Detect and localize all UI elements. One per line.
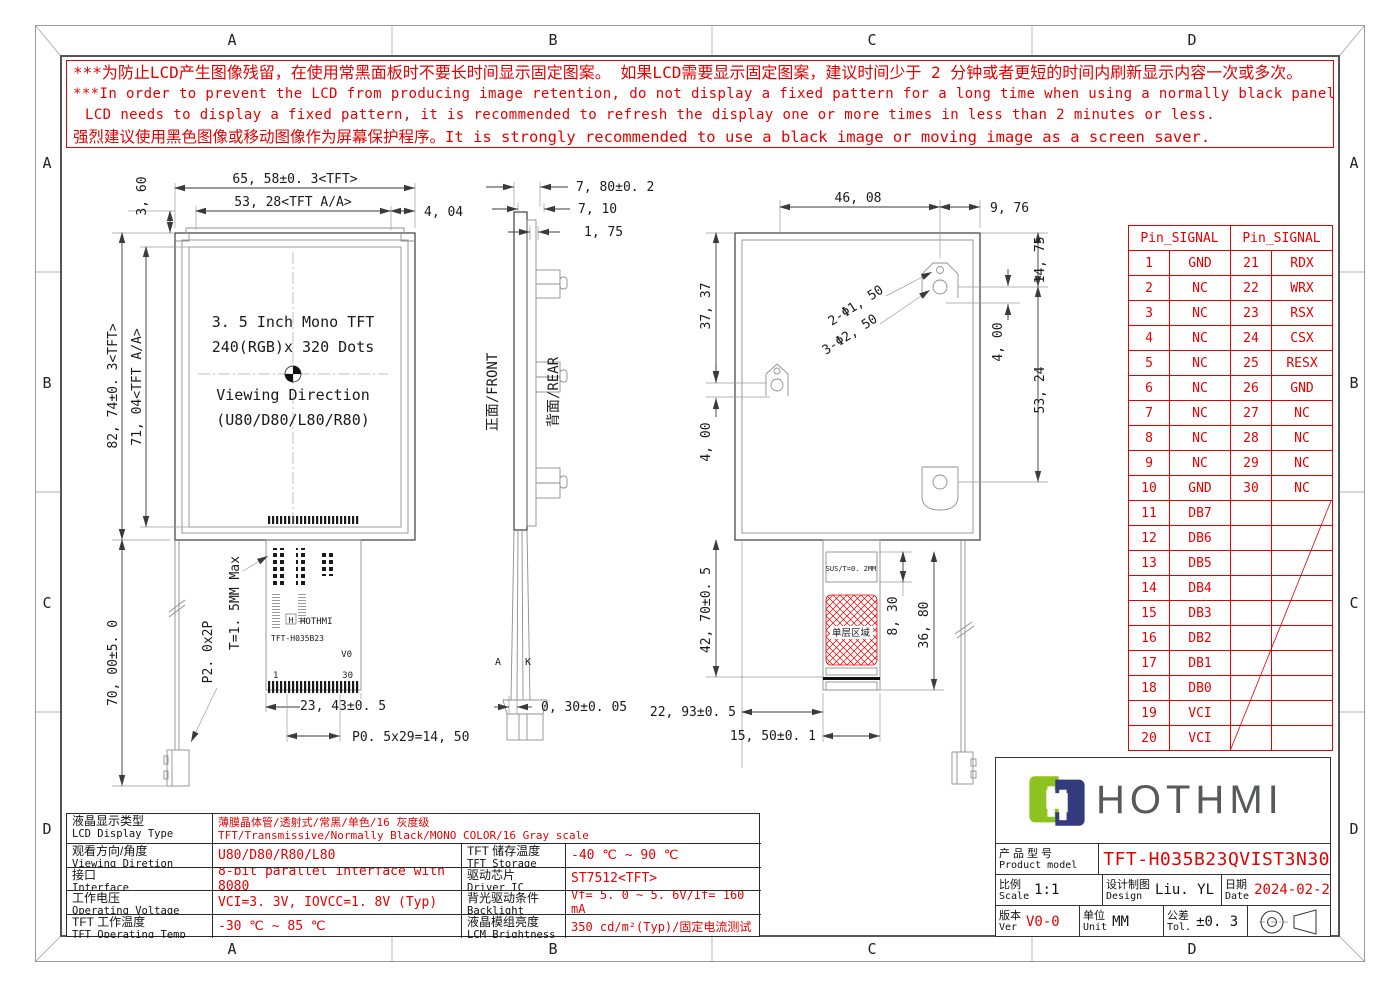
dim-400-right-label: 4, 00 <box>991 322 1006 361</box>
pin-signal-cell: GND <box>1170 251 1231 276</box>
pin-number-cell: 24 <box>1231 326 1272 351</box>
pin-signal-cell: NC <box>1170 326 1231 351</box>
pin-row: 14DB4 <box>1129 576 1333 601</box>
rear-face-label: 背面/REAR <box>546 356 562 427</box>
cathode-label: K <box>525 657 531 668</box>
pin-number-cell: 17 <box>1129 651 1170 676</box>
pin-signal-cell: NC <box>1272 451 1333 476</box>
zone-row-right-C: C <box>1341 590 1367 616</box>
pin-table: Pin_SIGNAL Pin_SIGNAL 1GND21RDX2NC22WRX3… <box>1128 225 1333 751</box>
pin-number-cell: 25 <box>1231 351 1272 376</box>
sus-label: SUS/T=0. 2MM <box>826 565 877 573</box>
spec-label: 液晶显示类型 LCD Display Type <box>67 814 213 844</box>
pin-row: 18DB0 <box>1129 676 1333 701</box>
dim-fpc-length-label: 70, 00±5. 0 <box>106 620 121 706</box>
dim-400-left-label: 4, 00 <box>699 422 714 461</box>
pin-row: 1GND21RDX <box>1129 251 1333 276</box>
spec-value-en: TFT/Transmissive/Normally Black/MONO COL… <box>218 829 589 842</box>
pin-row: 3NC23RSX <box>1129 301 1333 326</box>
pin-row: 20VCI <box>1129 726 1333 751</box>
zone-col-top-B: B <box>540 27 566 53</box>
pin-row: 13DB5 <box>1129 551 1333 576</box>
date-cell: 日期 Date 2024-02-27 <box>1222 875 1330 905</box>
pin-number-cell: 5 <box>1129 351 1170 376</box>
pin-signal-cell <box>1272 676 1333 701</box>
pin-row: 17DB1 <box>1129 651 1333 676</box>
rear-fpc: SUS/T=0. 2MM 单层区域 <box>823 540 880 690</box>
spec-label-en: LCD Display Type <box>72 828 207 840</box>
warning-line-mixed: 强烈建议使用黑色图像或移动图像作为屏幕保护程序。It is strongly r… <box>73 127 1327 149</box>
title-block: HOTHMI 产 品 型 号 Product model TFT-H035B23… <box>995 757 1331 937</box>
pin-number-cell: 29 <box>1231 451 1272 476</box>
dim-3680-label: 36, 80 <box>917 602 932 649</box>
spec-value-cn: 薄膜晶体管/透射式/常黑/单色/16 灰度级 <box>218 816 429 829</box>
pin-number-cell: 10 <box>1129 476 1170 501</box>
pin-signal-cell: DB2 <box>1170 626 1231 651</box>
pin-signal-cell: WRX <box>1272 276 1333 301</box>
pin-number-cell: 20 <box>1129 726 1170 751</box>
zone-row-left-A: A <box>34 150 60 176</box>
zone-row-left-D: D <box>34 816 60 842</box>
fpc-version-label: V0 <box>341 650 352 660</box>
pin-number-cell: 18 <box>1129 676 1170 701</box>
dim-total-thickness-label: 7, 80±0. 2 <box>576 180 654 195</box>
spec-table: 液晶显示类型 LCD Display Type 薄膜晶体管/透射式/常黑/单色/… <box>66 813 760 937</box>
unit-value: MM <box>1112 914 1129 930</box>
pin-signal-cell: NC <box>1170 401 1231 426</box>
pin-table-header-row: Pin_SIGNAL Pin_SIGNAL <box>1129 226 1333 251</box>
pin-number-cell <box>1231 651 1272 676</box>
zone-row-left-B: B <box>34 370 60 396</box>
dim-5324-label: 53, 24 <box>1033 366 1048 413</box>
center-mark-icon <box>293 366 301 374</box>
product-model-row: 产 品 型 号 Product model TFT-H035B23QVIST3N… <box>996 844 1330 875</box>
anode-label: A <box>495 657 501 668</box>
fpc-logo-icon: H <box>289 616 294 625</box>
pin-row: 19VCI <box>1129 701 1333 726</box>
viewing-angles-label: (U80/D80/L80/R80) <box>216 411 370 429</box>
pin-number-cell: 7 <box>1129 401 1170 426</box>
fpc-pin1-label: 1 <box>273 671 278 681</box>
pin-number-cell: 28 <box>1231 426 1272 451</box>
zone-col-top-C: C <box>859 27 885 53</box>
warning-line-cn: ***为防止LCD产生图像残留，在使用常黑面板时不要长时间显示固定图案。 如果L… <box>73 62 1327 84</box>
zone-col-bottom-A: A <box>219 936 245 962</box>
pin-row: 15DB3 <box>1129 601 1333 626</box>
pin-signal-cell: NC <box>1170 376 1231 401</box>
pin-signal-cell: VCI <box>1170 726 1231 751</box>
dim-3737-label: 37, 37 <box>699 283 714 330</box>
dim-height-label: 82, 74±0. 3<TFT> <box>106 323 121 448</box>
fpc-model-label: TFT-H035B23 <box>271 634 324 643</box>
pin-signal-cell: GND <box>1170 476 1231 501</box>
spec-value: Vf= 5. 0 ~ 5. 6V/If= 160 mA <box>566 891 761 915</box>
spec-value: 8-bit parallel interface with 8080 <box>213 868 462 892</box>
pin-table-body: 1GND21RDX2NC22WRX3NC23RSX4NC24CSX5NC25RE… <box>1129 251 1333 751</box>
scale-value: 1:1 <box>1034 882 1059 898</box>
pin-number-cell <box>1231 626 1272 651</box>
pin-signal-cell <box>1272 701 1333 726</box>
pin-number-cell <box>1231 726 1272 751</box>
pin-table-header-left: Pin_SIGNAL <box>1129 226 1231 251</box>
pin-number-cell: 27 <box>1231 401 1272 426</box>
pin-signal-cell <box>1272 651 1333 676</box>
version-cell: 版本 Ver V0-0 <box>996 906 1080 937</box>
zone-col-bottom-C: C <box>859 936 885 962</box>
pin-signal-cell <box>1272 501 1333 526</box>
pin-number-cell <box>1231 576 1272 601</box>
pin-table-container: Pin_SIGNAL Pin_SIGNAL 1GND21RDX2NC22WRX3… <box>1128 225 1332 751</box>
zone-col-top-D: D <box>1179 27 1205 53</box>
rear-view: 2-Φ1, 50 3-Φ2, 50 SUS/T=0. 2MM 单层区域 <box>735 233 980 784</box>
pin-number-cell <box>1231 676 1272 701</box>
pin-number-cell: 26 <box>1231 376 1272 401</box>
backlight-connector-rear <box>952 540 976 784</box>
pin-signal-cell: NC <box>1272 401 1333 426</box>
pin-signal-cell: NC <box>1272 426 1333 451</box>
dim-fpc-thickness-label: 0, 30±0. 05 <box>541 700 627 715</box>
logo-row: HOTHMI <box>996 758 1330 844</box>
single-layer-label: 单层区域 <box>832 627 871 639</box>
date-value: 2024-02-27 <box>1254 882 1330 898</box>
dim-4608-label: 46, 08 <box>835 191 882 206</box>
fpc-pin30-label: 30 <box>342 671 353 681</box>
hothmi-logo-icon <box>1026 769 1088 833</box>
pin-row: 8NC28NC <box>1129 426 1333 451</box>
pin-row: 9NC29NC <box>1129 451 1333 476</box>
projection-symbol-icon <box>1258 907 1320 937</box>
pin-number-cell <box>1231 701 1272 726</box>
pin-number-cell: 13 <box>1129 551 1170 576</box>
pin-signal-cell: CSX <box>1272 326 1333 351</box>
pin-signal-cell: VCI <box>1170 701 1231 726</box>
dim-830-label: 8, 30 <box>886 596 901 635</box>
dim-top-bezel-label: 3, 60 <box>135 176 150 215</box>
pin-signal-cell: NC <box>1272 476 1333 501</box>
pin-row: 2NC22WRX <box>1129 276 1333 301</box>
zone-row-left-C: C <box>34 590 60 616</box>
pin-number-cell: 1 <box>1129 251 1170 276</box>
pin-number-cell: 14 <box>1129 576 1170 601</box>
pin-row: 6NC26GND <box>1129 376 1333 401</box>
spec-label: TFT 储存温度 TFT Storage Temp <box>462 844 566 868</box>
warning-line-en2: LCD needs to display a fixed pattern, it… <box>73 105 1327 127</box>
design-value: Liu. YL <box>1155 882 1214 898</box>
pin-signal-cell: DB4 <box>1170 576 1231 601</box>
dim-mid-thickness-label: 7, 10 <box>578 202 617 217</box>
spec-value: VCI=3. 3V, IOVCC=1. 8V (Typ) <box>213 891 462 915</box>
pin-number-cell: 15 <box>1129 601 1170 626</box>
side-view: A K 正面/FRONT 背面/REAR <box>485 212 567 740</box>
pin-signal-cell: RSX <box>1272 301 1333 326</box>
pin-number-cell: 3 <box>1129 301 1170 326</box>
spec-label: 接口 Interface <box>67 868 213 892</box>
pin-signal-cell: DB6 <box>1170 526 1231 551</box>
image-retention-warning: ***为防止LCD产生图像残留，在使用常黑面板时不要长时间显示固定图案。 如果L… <box>66 60 1334 148</box>
spec-label: 液晶模组亮度 LCM Brightness <box>462 915 566 939</box>
zone-row-right-D: D <box>1341 816 1367 842</box>
pin-number-cell: 16 <box>1129 626 1170 651</box>
dim-aa-width-label: 53, 28<TFT A/A> <box>234 195 352 210</box>
spec-label: 驱动芯片 Driver IC <box>462 868 566 892</box>
dim-offset-label: 4, 04 <box>424 205 463 220</box>
pin-signal-cell: GND <box>1272 376 1333 401</box>
pin-number-cell: 22 <box>1231 276 1272 301</box>
pin-signal-cell: NC <box>1170 301 1231 326</box>
unit-cell: 单位 Unit MM <box>1080 906 1164 937</box>
zone-row-right-B: B <box>1341 370 1367 396</box>
pin-signal-cell: DB3 <box>1170 601 1231 626</box>
tolerance-value: ±0. 3 <box>1196 914 1238 930</box>
front-face-label: 正面/FRONT <box>485 352 501 431</box>
pin-signal-cell: DB1 <box>1170 651 1231 676</box>
pin-signal-cell <box>1272 551 1333 576</box>
pin-signal-cell: DB5 <box>1170 551 1231 576</box>
zone-col-top-A: A <box>219 27 245 53</box>
side-dimensions: 7, 80±0. 2 7, 10 1, 75 0, 30±0. 05 <box>486 180 654 715</box>
pin-signal-cell <box>1272 526 1333 551</box>
pin-row: 5NC25RESX <box>1129 351 1333 376</box>
pin-row: 12DB6 <box>1129 526 1333 551</box>
spec-label-cn: 液晶显示类型 <box>72 815 207 828</box>
fpc-detail: H HOTHMI TFT-H035B23 V0 1 30 <box>266 540 361 693</box>
scale-design-date-row: 比例 Scale 1:1 设计制图 Design Liu. YL 日期 Date… <box>996 875 1330 906</box>
projection-cell <box>1248 906 1330 937</box>
ver-unit-tol-row: 版本 Ver V0-0 单位 Unit MM 公差 Tol. ±0. 3 <box>996 906 1330 937</box>
viewing-direction-label: Viewing Direction <box>216 386 370 404</box>
dim-976-label: 9, 76 <box>990 201 1029 216</box>
dim-pin-pitch-label: P0. 5x29=14, 50 <box>352 730 469 745</box>
pin-row: 10GND30NC <box>1129 476 1333 501</box>
pin-number-cell: 6 <box>1129 376 1170 401</box>
pin-number-cell: 9 <box>1129 451 1170 476</box>
dim-width-label: 65, 58±0. 3<TFT> <box>232 172 357 187</box>
spec-value: 薄膜晶体管/透射式/常黑/单色/16 灰度级 TFT/Transmissive/… <box>213 814 761 844</box>
pin-number-cell: 19 <box>1129 701 1170 726</box>
thickness-label: T=1. 5MM Max <box>228 556 243 650</box>
pin-number-cell: 8 <box>1129 426 1170 451</box>
pin-number-cell <box>1231 601 1272 626</box>
dim-aa-height-label: 71, 04<TFT A/A> <box>130 328 145 446</box>
spec-value: 350 cd/m²(Typ)/固定电流测试 <box>566 915 761 939</box>
brand-wordmark: HOTHMI <box>1096 778 1284 823</box>
fpc-brand-label: HOTHMI <box>300 617 333 627</box>
dim-fpc-width-label: 23, 43±0. 5 <box>300 699 386 714</box>
tolerance-cell: 公差 Tol. ±0. 3 <box>1164 906 1248 937</box>
pin-signal-cell: DB7 <box>1170 501 1231 526</box>
pin-number-cell: 12 <box>1129 526 1170 551</box>
spec-label: 背光驱动条件 Backlight conditions <box>462 891 566 915</box>
pin-number-cell <box>1231 551 1272 576</box>
pin-row: 16DB2 <box>1129 626 1333 651</box>
pin-signal-cell <box>1272 601 1333 626</box>
spec-label: TFT 工作温度 TFT Operating Temp <box>67 915 213 939</box>
pin-signal-cell: RDX <box>1272 251 1333 276</box>
product-model-value: TFT-H035B23QVIST3N30 <box>1099 844 1330 874</box>
dim-1550-label: 15, 50±0. 1 <box>730 729 816 744</box>
pin-row: 7NC27NC <box>1129 401 1333 426</box>
pin-number-cell: 30 <box>1231 476 1272 501</box>
backlight-connector-front <box>164 540 189 786</box>
pin-number-cell: 21 <box>1231 251 1272 276</box>
pin-signal-cell <box>1272 726 1333 751</box>
backlight-pitch-label: P2. 0x2P <box>201 621 216 684</box>
panel-resolution-label: 240(RGB)x 320 Dots <box>212 338 375 356</box>
zone-col-bottom-D: D <box>1179 936 1205 962</box>
panel-size-label: 3. 5 Inch Mono TFT <box>212 313 375 331</box>
pin-signal-cell <box>1272 626 1333 651</box>
rear-dimensions: 46, 08 9, 76 14, 75 4, 00 53, 24 37, 37 … <box>650 191 1048 768</box>
design-cell: 设计制图 Design Liu. YL <box>1103 875 1222 905</box>
pin-row: 4NC24CSX <box>1129 326 1333 351</box>
dim-2293-label: 22, 93±0. 5 <box>650 705 736 720</box>
spec-label: 观看方向/角度 Viewing Diretion <box>67 844 213 868</box>
spec-value: ST7512<TFT> <box>566 868 761 892</box>
spec-label: 工作电压 Operating Voltage <box>67 891 213 915</box>
product-model-label: 产 品 型 号 Product model <box>996 844 1099 874</box>
dim-glass-thickness-label: 1, 75 <box>584 225 623 240</box>
pin-number-cell: 4 <box>1129 326 1170 351</box>
pin-signal-cell <box>1272 576 1333 601</box>
zone-col-bottom-B: B <box>540 936 566 962</box>
spec-value: -40 ℃ ~ 90 ℃ <box>566 844 761 868</box>
pin-table-header-right: Pin_SIGNAL <box>1231 226 1333 251</box>
pin-number-cell: 23 <box>1231 301 1272 326</box>
spec-value: U80/D80/R80/L80 <box>213 844 462 868</box>
pin-signal-cell: NC <box>1170 426 1231 451</box>
dim-4270-label: 42, 70±0. 5 <box>699 567 714 653</box>
dim-1475-label: 14, 75 <box>1033 237 1048 284</box>
zone-row-right-A: A <box>1341 150 1367 176</box>
pin-number-cell: 11 <box>1129 501 1170 526</box>
pin-row: 11DB7 <box>1129 501 1333 526</box>
pin-signal-cell: RESX <box>1272 351 1333 376</box>
pin-number-cell <box>1231 526 1272 551</box>
pin-signal-cell: NC <box>1170 351 1231 376</box>
pin-number-cell: 2 <box>1129 276 1170 301</box>
pin-signal-cell: NC <box>1170 276 1231 301</box>
pin-signal-cell: DB0 <box>1170 676 1231 701</box>
spec-value: -30 ℃ ~ 85 ℃ <box>213 915 462 939</box>
pin-number-cell <box>1231 501 1272 526</box>
version-value: V0-0 <box>1026 914 1060 930</box>
warning-line-en1: ***In order to prevent the LCD from prod… <box>73 84 1327 106</box>
pin-signal-cell: NC <box>1170 451 1231 476</box>
scale-cell: 比例 Scale 1:1 <box>996 875 1103 905</box>
